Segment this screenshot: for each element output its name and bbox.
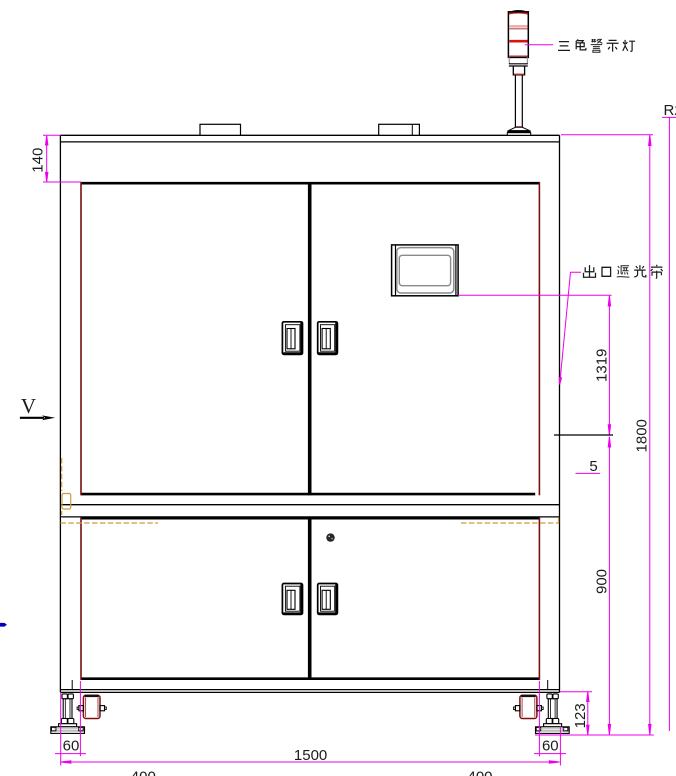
svg-text:400: 400: [467, 769, 492, 776]
svg-text:140: 140: [29, 148, 46, 173]
svg-text:900: 900: [593, 569, 610, 594]
svg-text:60: 60: [542, 737, 559, 754]
svg-text:V: V: [21, 394, 36, 418]
svg-text:5: 5: [589, 458, 597, 475]
svg-text:1500: 1500: [294, 747, 327, 764]
svg-text:1319: 1319: [593, 349, 610, 382]
svg-text:R2: R2: [664, 102, 676, 119]
svg-text:60: 60: [63, 737, 80, 754]
svg-text:123: 123: [572, 703, 589, 728]
svg-text:1800: 1800: [633, 419, 650, 452]
svg-text:400: 400: [131, 769, 156, 776]
